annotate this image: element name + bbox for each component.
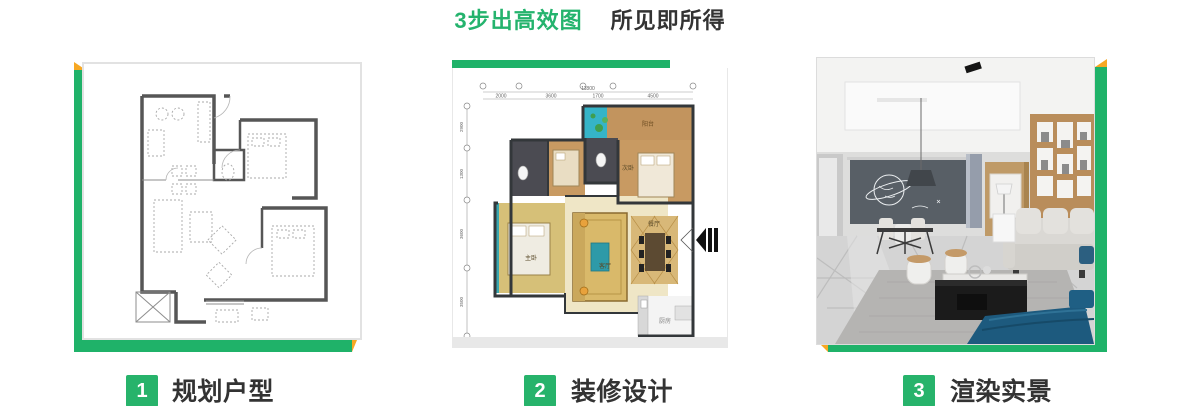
svg-text:1700: 1700: [592, 94, 603, 100]
render-photo-card: [816, 57, 1095, 345]
sketch-floorplan-card: [82, 62, 362, 340]
yellow-corner-end: [352, 340, 357, 352]
sketch-furniture: [148, 102, 314, 322]
color-floorplan-image: 11800 2000 3600 1700 4500 2900 1300 3600…: [453, 78, 729, 346]
svg-text:主卧: 主卧: [525, 254, 537, 262]
svg-text:11800: 11800: [581, 86, 595, 92]
sofa: [1003, 208, 1094, 278]
yellow-corner-top: [1095, 59, 1107, 67]
step-3: 3 渲染实景: [903, 375, 1052, 406]
promo-section: 3步出高效图所见即所得: [0, 0, 1180, 406]
panel-color-floorplan: 11800 2000 3600 1700 4500 2900 1300 3600…: [452, 60, 730, 348]
svg-text:客厅: 客厅: [599, 262, 611, 270]
svg-text:1300: 1300: [459, 168, 464, 179]
svg-text:2000: 2000: [495, 94, 506, 100]
sketch-walls: [142, 96, 326, 322]
svg-text:次卧: 次卧: [622, 164, 634, 172]
panel-render-photo: [816, 57, 1108, 353]
svg-text:4500: 4500: [647, 94, 658, 100]
green-frame-right: [1095, 67, 1107, 352]
dimension-left: 2900 1300 3600 3500: [459, 103, 470, 339]
svg-text:3600: 3600: [459, 228, 464, 239]
svg-text:厨房: 厨房: [659, 317, 671, 325]
step-2-badge: 2: [524, 375, 556, 406]
step-2-label: 装修设计: [571, 377, 673, 406]
svg-text:2900: 2900: [459, 121, 464, 132]
color-floorplan-card: 11800 2000 3600 1700 4500 2900 1300 3600…: [452, 68, 728, 348]
step-3-badge: 3: [903, 375, 935, 406]
entry-door-icon: [681, 228, 718, 252]
coffee-table: [935, 266, 1027, 320]
step-1-badge: 1: [126, 375, 158, 406]
interior-render-image: [817, 58, 1094, 344]
section-title-subtitle: 所见即所得: [611, 8, 726, 33]
sketch-floorplan-image: [112, 80, 344, 326]
section-title-highlight: 3步出高效图: [454, 8, 582, 33]
sketch-thin-walls: [136, 180, 244, 322]
green-frame-top: [452, 60, 670, 68]
floorplan-rooms: [495, 106, 693, 336]
step-2: 2 装修设计: [524, 375, 673, 406]
svg-text:阳台: 阳台: [642, 120, 654, 128]
panel-sketch-floorplan: [74, 62, 364, 354]
green-frame-bottom: [74, 340, 352, 352]
section-title: 3步出高效图所见即所得: [0, 3, 1180, 35]
svg-text:3600: 3600: [545, 94, 556, 100]
step-1-label: 规划户型: [172, 377, 274, 406]
svg-text:餐厅: 餐厅: [648, 220, 660, 228]
card-bottom-strip: [453, 337, 727, 347]
dimension-top: 11800 2000 3600 1700 4500: [480, 83, 696, 100]
step-3-label: 渲染实景: [950, 377, 1052, 406]
svg-text:3500: 3500: [459, 296, 464, 307]
step-1: 1 规划户型: [126, 375, 274, 406]
